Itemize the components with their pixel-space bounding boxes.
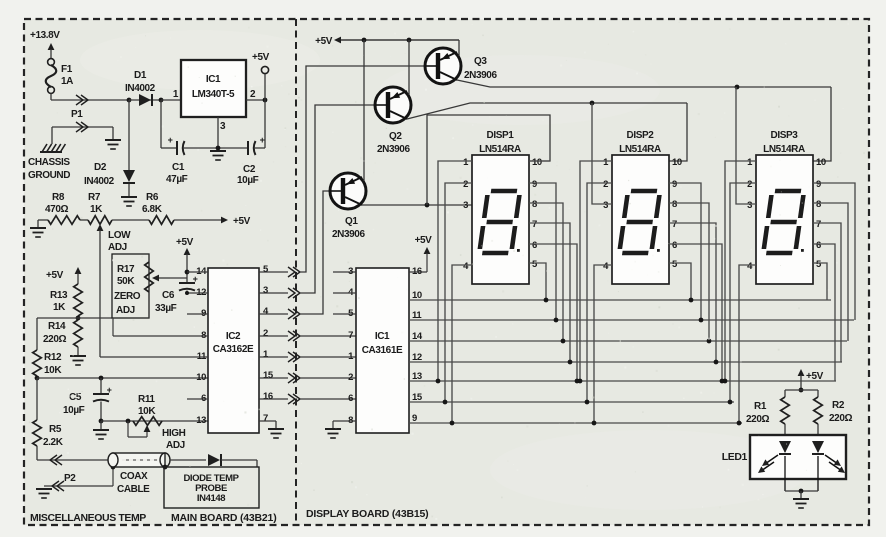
svg-text:16: 16 [263,391,273,402]
svg-text:C2: C2 [243,164,256,175]
svg-text:IC2: IC2 [226,331,241,342]
svg-text:50K: 50K [117,276,135,287]
svg-text:Q3: Q3 [474,56,487,67]
svg-text:+5V: +5V [806,371,824,382]
svg-text:2N3906: 2N3906 [332,229,365,240]
svg-text:R14: R14 [48,321,66,332]
svg-text:1A: 1A [61,76,73,87]
svg-text:10: 10 [672,157,682,168]
svg-text:+5V: +5V [252,52,270,63]
svg-text:7: 7 [672,219,677,230]
svg-text:R8: R8 [52,192,65,203]
svg-text:+: + [260,135,265,145]
svg-text:+5V: +5V [315,36,333,47]
svg-text:1K: 1K [90,204,103,215]
svg-text:6: 6 [348,393,353,404]
svg-text:+13.8V: +13.8V [30,30,60,41]
svg-text:DISP3: DISP3 [771,130,799,141]
svg-text:3: 3 [603,200,608,211]
svg-text:COAX: COAX [120,471,148,482]
svg-text:R6: R6 [146,192,159,203]
svg-text:MISCELLANEOUS TEMP: MISCELLANEOUS TEMP [30,512,146,524]
svg-text:C5: C5 [69,392,82,403]
svg-text:F1: F1 [61,64,73,75]
svg-text:3: 3 [220,121,226,132]
svg-text:LN514RA: LN514RA [619,144,661,155]
svg-text:7: 7 [348,330,353,341]
svg-text:CA3161E: CA3161E [362,345,403,356]
svg-text:10: 10 [816,157,826,168]
svg-text:8: 8 [532,199,537,210]
svg-text:10µF: 10µF [63,405,85,416]
svg-text:R1: R1 [754,401,767,412]
svg-text:R17: R17 [117,264,135,275]
svg-text:2: 2 [263,328,268,339]
svg-text:P2: P2 [64,473,76,484]
svg-text:CABLE: CABLE [117,484,150,495]
svg-text:10K: 10K [44,365,62,376]
svg-text:R13: R13 [50,290,68,301]
svg-text:IC1: IC1 [375,331,390,342]
svg-text:+5V: +5V [176,237,194,248]
svg-text:R5: R5 [49,424,62,435]
svg-text:D2: D2 [94,162,107,173]
svg-text:10K: 10K [138,406,156,417]
svg-text:R11: R11 [138,394,155,405]
svg-text:D1: D1 [134,70,147,81]
svg-text:LOW: LOW [108,230,131,241]
svg-text:LM340T-5: LM340T-5 [192,89,235,100]
svg-text:6: 6 [672,240,677,251]
svg-text:R2: R2 [832,400,845,411]
svg-text:13: 13 [196,415,206,426]
svg-text:+5V: +5V [46,270,64,281]
svg-text:ADJ: ADJ [108,242,127,253]
svg-text:+: + [107,385,112,395]
svg-text:GROUND: GROUND [28,170,70,181]
svg-text:P1: P1 [71,109,83,120]
svg-text:2: 2 [463,179,468,190]
svg-text:IN4002: IN4002 [84,176,115,187]
svg-text:CA3162E: CA3162E [213,344,254,355]
svg-text:R12: R12 [44,352,62,363]
svg-text:9: 9 [532,179,537,190]
svg-text:DISP1: DISP1 [487,130,515,141]
svg-text:15: 15 [263,370,274,381]
svg-text:8: 8 [816,199,821,210]
svg-text:2: 2 [348,372,353,383]
svg-text:3: 3 [463,200,468,211]
svg-text:Q2: Q2 [389,131,402,142]
svg-text:2N3906: 2N3906 [377,144,410,155]
svg-text:470Ω: 470Ω [45,204,68,215]
svg-text:C6: C6 [162,290,175,301]
svg-text:LED1: LED1 [722,451,748,463]
svg-text:DISP2: DISP2 [627,130,655,141]
svg-text:2: 2 [747,179,752,190]
svg-text:IN4148: IN4148 [197,493,225,504]
svg-text:220Ω: 220Ω [43,334,66,345]
svg-text:Q1: Q1 [345,216,358,227]
svg-text:+: + [168,135,173,145]
svg-text:7: 7 [816,219,821,230]
svg-text:1: 1 [173,89,179,100]
svg-text:47µF: 47µF [166,174,188,185]
svg-text:IN4002: IN4002 [125,83,156,94]
svg-text:220Ω: 220Ω [746,414,769,425]
svg-text:6: 6 [532,240,537,251]
svg-text:C1: C1 [172,162,185,173]
svg-text:2.2K: 2.2K [43,437,64,448]
svg-text:6.8K: 6.8K [142,204,163,215]
svg-text:ADJ: ADJ [116,305,135,316]
svg-text:9: 9 [816,179,821,190]
svg-text:220Ω: 220Ω [829,413,852,424]
svg-text:9: 9 [672,179,677,190]
svg-text:IC1: IC1 [206,74,221,85]
svg-text:2: 2 [603,179,608,190]
svg-text:R7: R7 [88,192,101,203]
svg-text:DISPLAY BOARD (43B15): DISPLAY BOARD (43B15) [306,508,428,520]
svg-text:ADJ: ADJ [166,440,185,451]
svg-text:8: 8 [672,199,677,210]
svg-text:1K: 1K [53,302,66,313]
svg-text:7: 7 [532,219,537,230]
svg-text:6: 6 [816,240,821,251]
svg-text:2N3906: 2N3906 [464,70,497,81]
svg-text:LN514RA: LN514RA [479,144,521,155]
svg-text:33µF: 33µF [155,303,177,314]
svg-text:ZERO: ZERO [114,291,141,302]
svg-text:10: 10 [196,372,206,383]
svg-text:LN514RA: LN514RA [763,144,805,155]
svg-text:2: 2 [250,89,256,100]
svg-text:10µF: 10µF [237,175,259,186]
svg-text:+5V: +5V [415,235,433,246]
svg-text:CHASSIS: CHASSIS [28,157,70,168]
svg-text:MAIN BOARD (43B21): MAIN BOARD (43B21) [171,512,277,524]
svg-text:7: 7 [263,413,268,424]
svg-text:3: 3 [263,285,268,296]
svg-text:HIGH: HIGH [162,428,186,439]
svg-text:10: 10 [532,157,542,168]
svg-text:3: 3 [747,200,752,211]
